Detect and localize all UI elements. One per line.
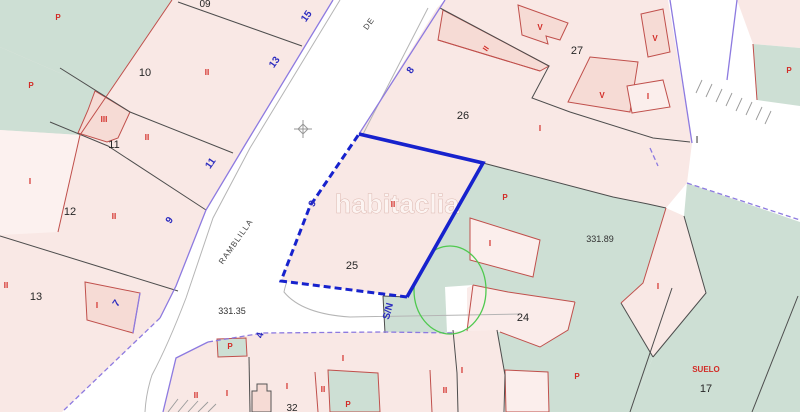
street-area-label-i: I — [696, 135, 699, 146]
cadastral-map-svg: habitaclia RAMBLILLA DE 09 10 11 12 13 2… — [0, 0, 800, 412]
floor-label: I — [96, 301, 98, 310]
floor-label: II — [205, 68, 209, 77]
watermark: habitaclia — [335, 189, 461, 219]
floor-label: I — [489, 239, 491, 248]
parcel-number-17: 17 — [700, 383, 712, 395]
floor-label: P — [574, 372, 580, 381]
parcel-number-11: 11 — [108, 139, 119, 151]
floor-label: V — [652, 34, 658, 43]
block-south-buildings — [163, 332, 458, 412]
elevation-331-89: 331.89 — [586, 234, 614, 244]
floor-label: II — [321, 385, 325, 394]
building-p-green-south — [328, 370, 380, 412]
floor-label: I — [29, 177, 31, 186]
elevation-331-35: 331.35 — [218, 306, 246, 316]
parcel-number-26: 26 — [457, 110, 469, 122]
building-below-24 — [505, 370, 549, 412]
parcel-number-12: 12 — [64, 206, 76, 218]
parcel-number-27: 27 — [571, 45, 583, 57]
floor-label: P — [227, 342, 233, 351]
parcel-number-09: 09 — [199, 0, 211, 10]
floor-label: I — [647, 92, 649, 101]
floor-label: P — [786, 66, 792, 75]
floor-label: II — [145, 133, 149, 142]
parcel-topright-green — [753, 44, 800, 106]
parcel-number-32: 32 — [286, 403, 298, 412]
floor-label: I — [286, 382, 288, 391]
floor-label: II — [443, 386, 447, 395]
land-use-label-suelo: SUELO — [692, 365, 720, 374]
floor-label: V — [537, 23, 543, 32]
floor-label: I — [461, 366, 463, 375]
floor-label: V — [599, 91, 605, 100]
floor-label: I — [342, 354, 344, 363]
parcel-number-24: 24 — [517, 312, 529, 324]
parcel-number-25: 25 — [346, 260, 358, 272]
floor-label: I — [657, 282, 659, 291]
floor-label: I — [226, 389, 228, 398]
floor-label: P — [28, 81, 34, 90]
parcel-number-13: 13 — [30, 291, 42, 303]
floor-label: P — [502, 193, 508, 202]
floor-label: II — [4, 281, 8, 290]
floor-label: P — [55, 13, 61, 22]
floor-label: II — [391, 200, 395, 209]
parcel-number-10: 10 — [139, 67, 151, 79]
floor-label: P — [345, 400, 351, 409]
floor-label: II — [112, 212, 116, 221]
floor-label: I — [539, 124, 541, 133]
floor-label: III — [101, 115, 108, 124]
cadastral-map: habitaclia RAMBLILLA DE 09 10 11 12 13 2… — [0, 0, 800, 412]
floor-label: II — [194, 391, 198, 400]
